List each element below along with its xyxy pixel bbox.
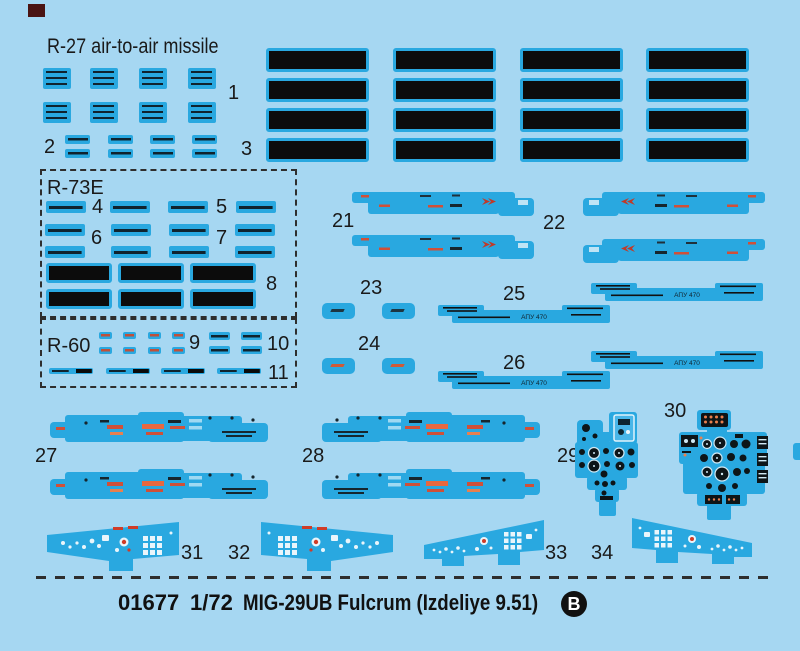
r60-stencil-small: [172, 332, 185, 339]
r60-stencil-small: [148, 332, 161, 339]
apu-rail-text: АПУ 470: [674, 292, 700, 299]
callout-2: 2: [44, 137, 55, 157]
black-fin-strip: [266, 138, 369, 162]
fuselage-stencil-strip: [322, 411, 540, 445]
callout-34: 34: [591, 543, 613, 563]
black-fin-strip: [646, 108, 749, 132]
black-fin-strip: [266, 78, 369, 102]
black-stripe-decal: [118, 263, 184, 283]
small-placard-decal: [322, 358, 355, 374]
kit-number: 01677: [118, 590, 179, 616]
small-placard-decal: [382, 303, 415, 319]
side-console-decal: [627, 518, 752, 566]
black-fin-strip: [266, 108, 369, 132]
small-placard-decal: [322, 303, 355, 319]
r27-stencil-large: [188, 68, 216, 89]
kit-name: MIG-29UB Fulcrum (Izdeliye 9.51): [243, 590, 538, 616]
r60-stencil-small: [99, 332, 112, 339]
r27-stencil-small: [150, 135, 175, 144]
r60-stencil-small: [99, 347, 112, 354]
apu-470-rail-decal: АПУ 470: [591, 348, 763, 370]
r27-stencil-large: [188, 102, 216, 123]
callout-33: 33: [545, 543, 567, 563]
r60-stencil-wide: [209, 332, 230, 340]
callout-6: 6: [91, 228, 102, 248]
r60-stripe-decal: [161, 368, 205, 374]
apu-470-rail-decal: АПУ 470: [438, 368, 610, 390]
r27-stencil-small: [192, 149, 217, 158]
r27-section-title: R-27 air-to-air missile: [47, 35, 219, 59]
apu-rail-text: АПУ 470: [521, 314, 547, 321]
r27-stencil-large: [90, 68, 118, 89]
r27-stencil-small: [150, 149, 175, 158]
decal-sheet: R-27 air-to-air missile 1 2 3 R-73E 4 5: [0, 0, 800, 651]
r73e-stencil: [168, 201, 208, 213]
sheet-letter: B: [568, 595, 581, 613]
callout-1: 1: [228, 83, 239, 103]
black-fin-strip: [520, 48, 623, 72]
callout-23: 23: [360, 278, 382, 298]
callout-8: 8: [266, 274, 277, 294]
black-stripe-decal: [46, 289, 112, 309]
r60-stencil-wide: [241, 346, 262, 354]
callout-7: 7: [216, 228, 227, 248]
black-stripe-decal: [190, 289, 256, 309]
callout-25: 25: [503, 284, 525, 304]
walkway-strip-decal: [583, 239, 765, 264]
callout-4: 4: [92, 197, 103, 217]
black-fin-strip: [646, 78, 749, 102]
black-fin-strip: [393, 138, 496, 162]
instrument-panel-decal: [677, 408, 771, 520]
black-fin-strip: [393, 108, 496, 132]
r60-stencil-small: [172, 347, 185, 354]
r27-stencil-large: [43, 102, 71, 123]
r60-stripe-decal: [49, 368, 93, 374]
black-fin-strip: [646, 48, 749, 72]
black-fin-strip: [393, 78, 496, 102]
r27-stencil-small: [108, 135, 133, 144]
r27-stencil-small: [192, 135, 217, 144]
callout-27: 27: [35, 446, 57, 466]
callout-28: 28: [302, 446, 324, 466]
r27-stencil-small: [108, 149, 133, 158]
r60-stencil-small: [148, 347, 161, 354]
r27-stencil-large: [139, 102, 167, 123]
apu-rail-text: АПУ 470: [674, 360, 700, 367]
apu-470-rail-decal: АПУ 470: [438, 302, 610, 324]
r73e-stencil: [45, 224, 85, 236]
r27-stencil-small: [65, 149, 90, 158]
r60-section-title: R-60: [47, 335, 90, 358]
small-placard-decal: [382, 358, 415, 374]
r60-stencil-wide: [241, 332, 262, 340]
black-stripe-decal: [118, 289, 184, 309]
r73e-stencil: [110, 201, 150, 213]
fuselage-stencil-strip: [50, 468, 268, 502]
callout-10: 10: [267, 334, 289, 354]
walkway-strip-decal: [583, 192, 765, 217]
apu-470-rail-decal: АПУ 470: [591, 280, 763, 302]
callout-3: 3: [241, 139, 252, 159]
r73e-stencil: [235, 224, 275, 236]
black-stripe-decal: [190, 263, 256, 283]
r27-stencil-large: [43, 68, 71, 89]
r60-stripe-decal: [217, 368, 261, 374]
r73e-stencil: [111, 224, 151, 236]
r73e-stencil: [169, 246, 209, 258]
edge-decal-fragment: [793, 443, 800, 460]
r60-stencil-wide: [209, 346, 230, 354]
black-fin-strip: [520, 138, 623, 162]
fuselage-stencil-strip: [50, 411, 268, 445]
callout-24: 24: [358, 334, 380, 354]
callout-22: 22: [543, 213, 565, 233]
r27-stencil-large: [90, 102, 118, 123]
r73e-stencil: [236, 201, 276, 213]
callout-9: 9: [189, 333, 200, 353]
instrument-panel-decal: [575, 412, 639, 516]
r27-stencil-small: [65, 135, 90, 144]
r27-stencil-large: [139, 68, 167, 89]
r60-stencil-small: [123, 347, 136, 354]
kit-scale: 1/72: [190, 590, 233, 616]
side-console-decal: [424, 520, 549, 568]
r60-stencil-small: [123, 332, 136, 339]
r73e-stencil: [169, 224, 209, 236]
callout-11: 11: [268, 363, 289, 383]
callout-21: 21: [332, 211, 354, 231]
r73e-stencil: [235, 246, 275, 258]
black-fin-strip: [520, 78, 623, 102]
callout-31: 31: [181, 543, 203, 563]
r73e-stencil: [45, 246, 85, 258]
walkway-strip-decal: [352, 192, 534, 217]
apu-rail-text: АПУ 470: [521, 380, 547, 387]
fuselage-stencil-strip: [322, 468, 540, 502]
black-fin-strip: [393, 48, 496, 72]
black-stripe-decal: [46, 263, 112, 283]
black-fin-strip: [520, 108, 623, 132]
black-fin-strip: [646, 138, 749, 162]
footer-divider: [36, 576, 768, 579]
r60-stripe-decal: [106, 368, 150, 374]
side-console-decal: [47, 521, 182, 573]
walkway-strip-decal: [352, 235, 534, 260]
color-registration-mark: [28, 4, 45, 17]
callout-32: 32: [228, 543, 250, 563]
r73e-stencil: [46, 201, 86, 213]
callout-5: 5: [216, 197, 227, 217]
side-console-decal: [258, 521, 393, 573]
black-fin-strip: [266, 48, 369, 72]
sheet-letter-badge: B: [561, 591, 587, 617]
r73e-stencil: [111, 246, 151, 258]
